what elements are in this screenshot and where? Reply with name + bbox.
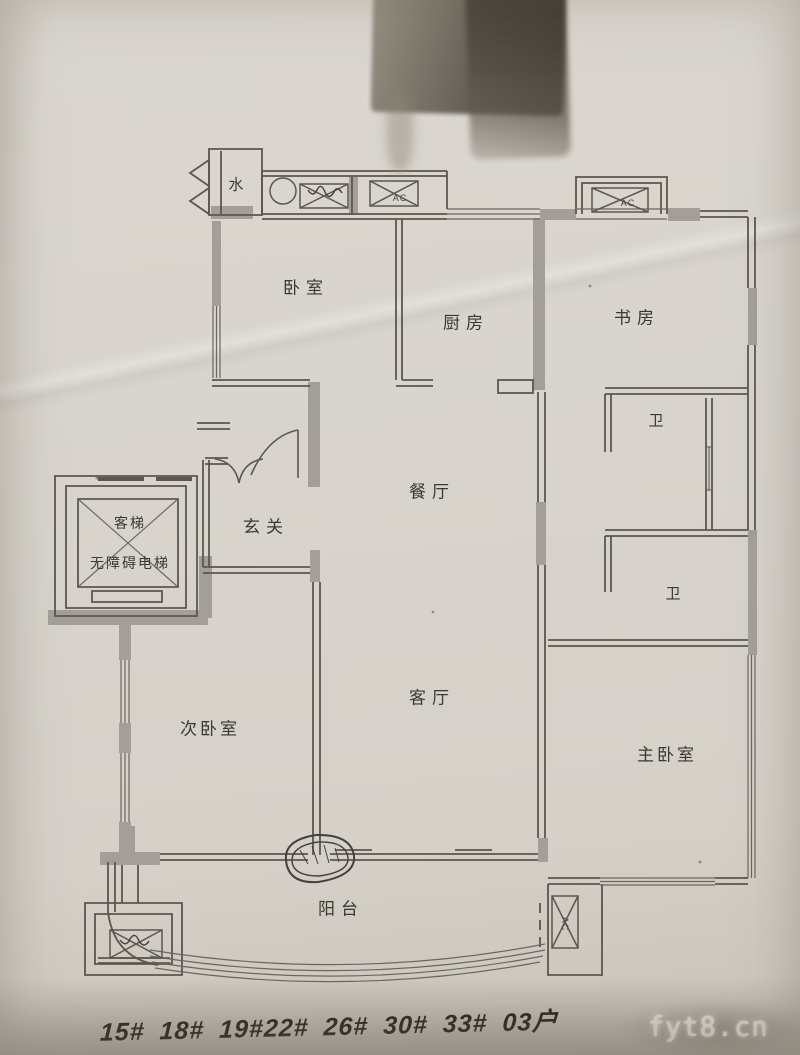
bifold-door-arc [215,459,263,483]
room-label-bath-upper: 卫 [648,410,663,431]
site-watermark: fyt8.cn [648,1012,769,1043]
ac-unit-label: AC [621,198,636,208]
floorplan-photo: 水 卧室 厨房 书房 卫 餐厅 玄关 客梯 无障碍电梯 卫 次卧室 客厅 主卧室… [0,0,800,1055]
room-label-master-bedroom: 主卧室 [631,741,697,766]
elevator-shaft [55,476,197,616]
balcony-curve [150,944,545,982]
ac-unit-icon [110,930,162,958]
room-label-kitchen: 厨房 [437,309,489,334]
room-label-second-bedroom: 次卧室 [174,715,240,740]
ac-unit-label: AC [393,193,408,203]
room-label-bath-lower: 卫 [665,583,680,604]
room-label-bedroom: 卧室 [277,274,329,299]
entry-door-arc [251,430,298,478]
room-label-balcony: 阳台 [312,895,364,920]
tape-stain-dark [465,0,571,160]
room-label-elevator: 客梯 [112,513,146,533]
pen-scribble-annotation [286,835,354,882]
equipment-symbols [110,178,648,958]
tape-stain-drip [386,92,414,172]
door-swings [215,430,298,483]
vent-chevron-icon [190,160,209,214]
room-label-water: 水 [228,174,243,195]
ac-unit-icon [300,184,348,208]
ac-unit-label: AC [560,917,570,932]
room-label-foyer: 玄关 [237,513,289,538]
basin-icon [270,178,296,204]
room-label-dining: 餐厅 [403,478,455,503]
room-label-living: 客厅 [403,684,455,709]
room-label-accessible-elevator: 无障碍电梯 [88,553,170,573]
room-label-study: 书房 [608,304,660,329]
